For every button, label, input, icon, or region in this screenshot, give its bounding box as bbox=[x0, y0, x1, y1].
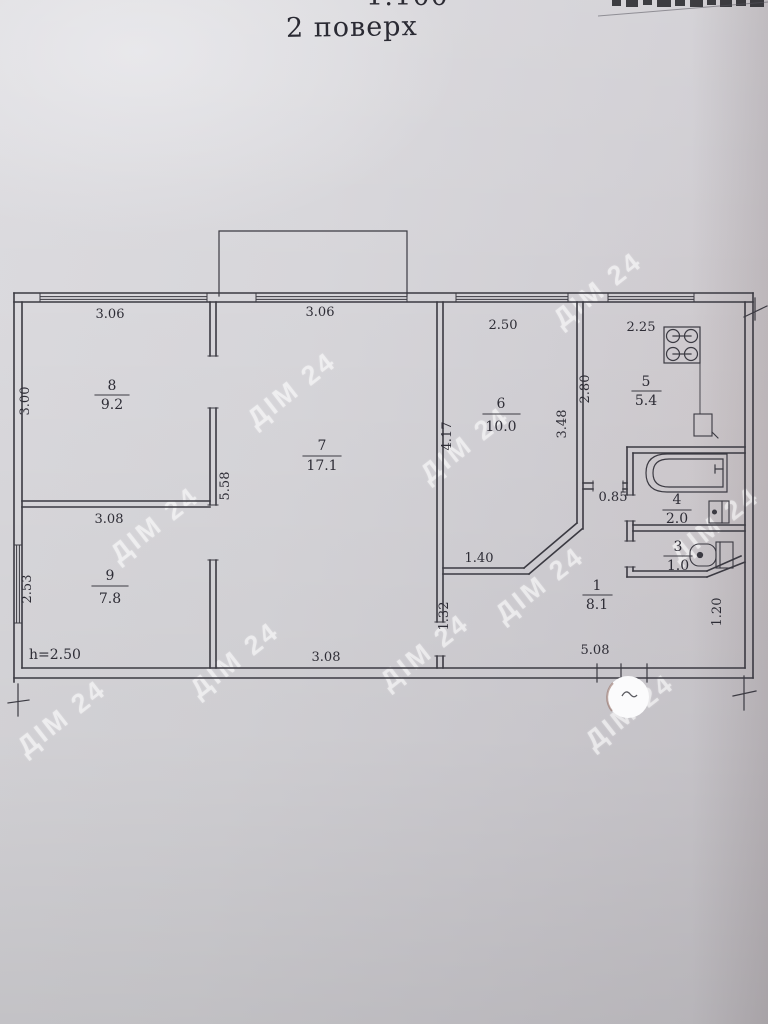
dim-room9-width: 3.08 bbox=[95, 512, 124, 527]
room1-number: 1 bbox=[593, 578, 602, 594]
wall-room8-room9 bbox=[22, 501, 210, 507]
dim-hall-bottom: 5.08 bbox=[581, 643, 610, 658]
toilet-icon bbox=[690, 542, 733, 568]
room8-number: 8 bbox=[108, 378, 117, 394]
cropped-stamp-marks bbox=[612, 0, 764, 7]
room1-area: 8.1 bbox=[586, 597, 608, 613]
room9-number: 9 bbox=[106, 568, 115, 584]
dim-room7-bottom: 3.08 bbox=[312, 650, 341, 665]
window-room6 bbox=[456, 293, 568, 302]
dim-room8-depth: 3.00 bbox=[18, 387, 33, 416]
dimension-labels: 3.06 3.06 2.50 2.25 3.08 3.08 1.40 0.85 … bbox=[18, 305, 725, 665]
vent-box bbox=[694, 414, 718, 438]
dim-room9-depth: 2.53 bbox=[20, 575, 35, 604]
dim-passage: 0.85 bbox=[599, 490, 628, 505]
dim-kitchen-width: 2.25 bbox=[627, 320, 656, 335]
dim-room6-left: 4.17 bbox=[440, 422, 455, 451]
window-kitchen bbox=[608, 293, 694, 302]
room4-number: 4 bbox=[673, 492, 682, 508]
dim-room7-width: 3.06 bbox=[306, 305, 335, 320]
room6-area: 10.0 bbox=[485, 419, 516, 435]
room5-area: 5.4 bbox=[635, 393, 657, 409]
dim-room6-bottom: 1.40 bbox=[465, 551, 494, 566]
dim-kitchen-depth: 2.80 bbox=[578, 375, 593, 404]
room9-area: 7.8 bbox=[99, 591, 121, 607]
room6-number: 6 bbox=[497, 396, 506, 412]
balcony-outline bbox=[219, 231, 407, 296]
dim-room6-right: 3.48 bbox=[555, 410, 570, 439]
stove-icon bbox=[664, 327, 700, 363]
white-sticker bbox=[607, 676, 649, 718]
room7-area: 17.1 bbox=[306, 458, 337, 474]
room3-area: 1.0 bbox=[667, 558, 689, 574]
dim-hall-right: 1.20 bbox=[710, 598, 725, 627]
room8-area: 9.2 bbox=[101, 397, 123, 413]
room4-area: 2.0 bbox=[666, 511, 688, 527]
wall-rooms89-room7 bbox=[208, 302, 218, 668]
dim-hall-left: 1.32 bbox=[437, 602, 452, 631]
room3-number: 3 bbox=[674, 539, 683, 555]
floor-plan-drawing: 3.06 3.06 2.50 2.25 3.08 3.08 1.40 0.85 … bbox=[0, 0, 768, 1024]
photographed-floor-plan-page: 1:100 2 поверх ДІМ 24 ДІМ 24 ДІМ 24 ДІМ … bbox=[0, 0, 768, 1024]
room5-number: 5 bbox=[642, 374, 651, 390]
room7-number: 7 bbox=[318, 438, 327, 454]
dim-room6-width: 2.50 bbox=[489, 318, 518, 333]
dim-room8-width: 3.06 bbox=[96, 307, 125, 322]
window-room7 bbox=[256, 293, 407, 302]
dim-room7-depth: 5.58 bbox=[218, 472, 233, 501]
sink-icon bbox=[709, 501, 729, 523]
bathtub-icon bbox=[646, 454, 727, 492]
ceiling-height-note: h=2.50 bbox=[29, 647, 81, 663]
exterior-walls bbox=[14, 293, 753, 682]
window-room8 bbox=[40, 293, 207, 302]
